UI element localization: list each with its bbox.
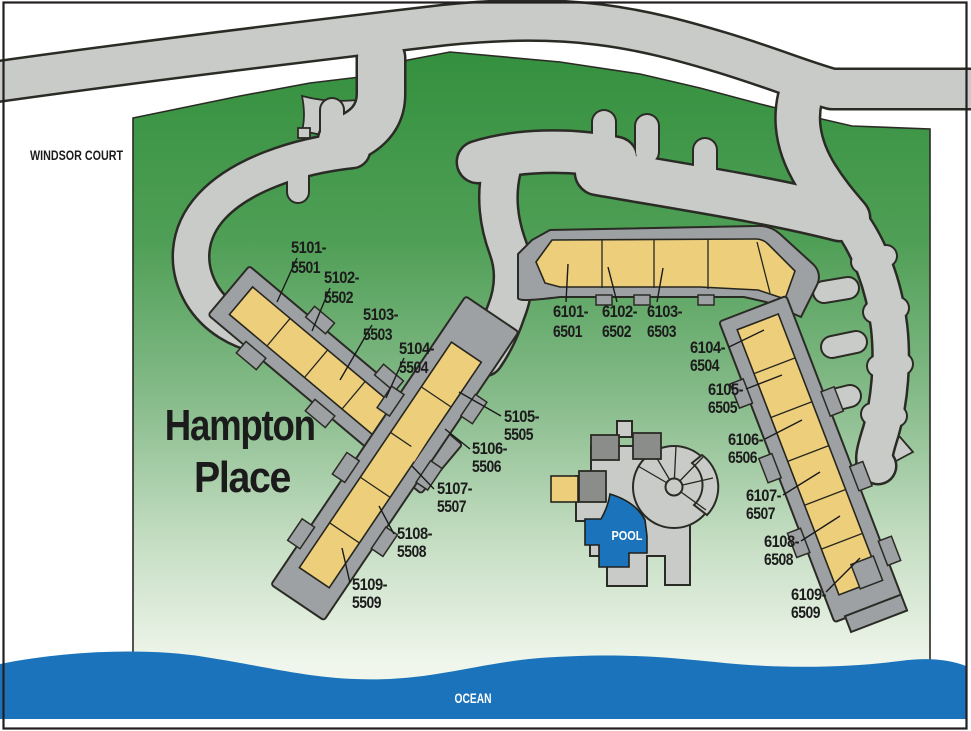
roof-block-side — [579, 471, 606, 502]
entrance-notch — [298, 128, 310, 138]
pool-label: POOL — [612, 528, 643, 543]
ocean-label: OCEAN — [455, 690, 492, 706]
site-map: POOL 5101- 5501 5102- 5502 5103- — [0, 0, 971, 731]
cabana-block — [551, 476, 578, 502]
map-canvas: POOL 5101- 5501 5102- 5502 5103- — [0, 0, 971, 731]
roof-block-left — [591, 435, 619, 460]
street-label: WINDSOR COURT — [30, 148, 124, 163]
roof-block-right — [633, 433, 661, 459]
fan-hub — [666, 479, 683, 496]
